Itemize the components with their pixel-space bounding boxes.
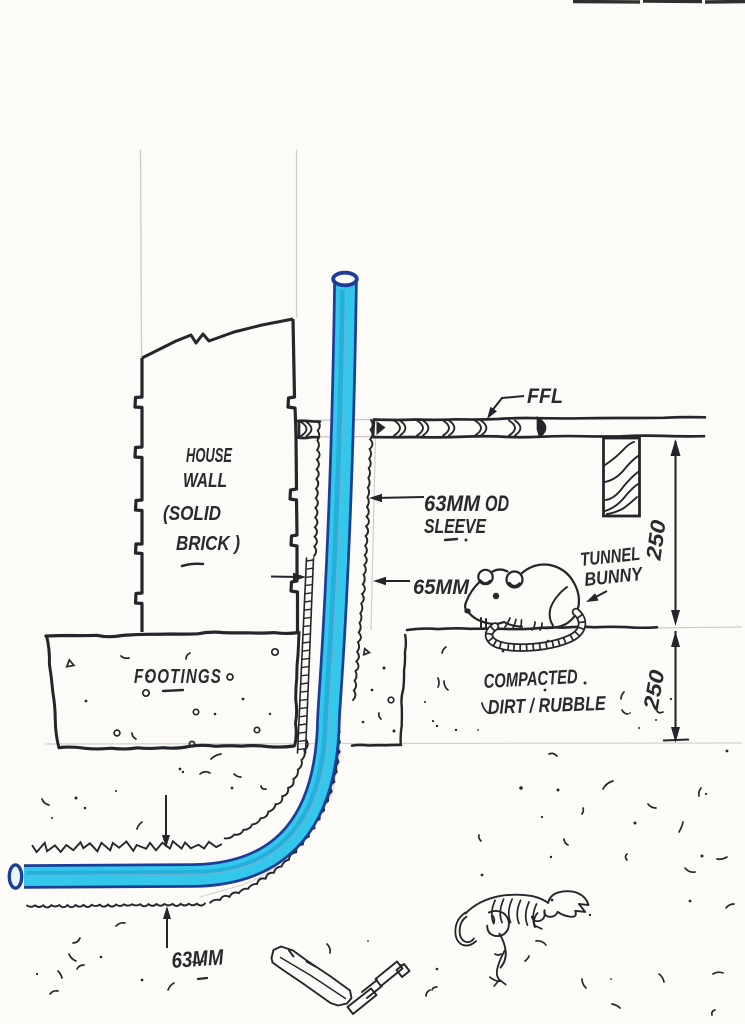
svg-text:SLEEVE: SLEEVE	[424, 516, 487, 538]
svg-text:65MM: 65MM	[413, 576, 469, 599]
svg-text:DIRT / RUBBLE: DIRT / RUBBLE	[487, 693, 606, 719]
svg-text:FFL: FFL	[527, 385, 563, 408]
svg-text:WALL: WALL	[183, 470, 227, 492]
svg-text:BRICK ): BRICK )	[176, 533, 240, 555]
svg-text:FOOTINGS: FOOTINGS	[134, 666, 222, 688]
svg-text:OD: OD	[485, 491, 509, 516]
svg-text:63MM: 63MM	[171, 944, 225, 973]
svg-text:(SOLID: (SOLID	[163, 503, 221, 525]
svg-text:63MM: 63MM	[424, 491, 481, 516]
svg-text:HOUSE: HOUSE	[186, 445, 232, 467]
